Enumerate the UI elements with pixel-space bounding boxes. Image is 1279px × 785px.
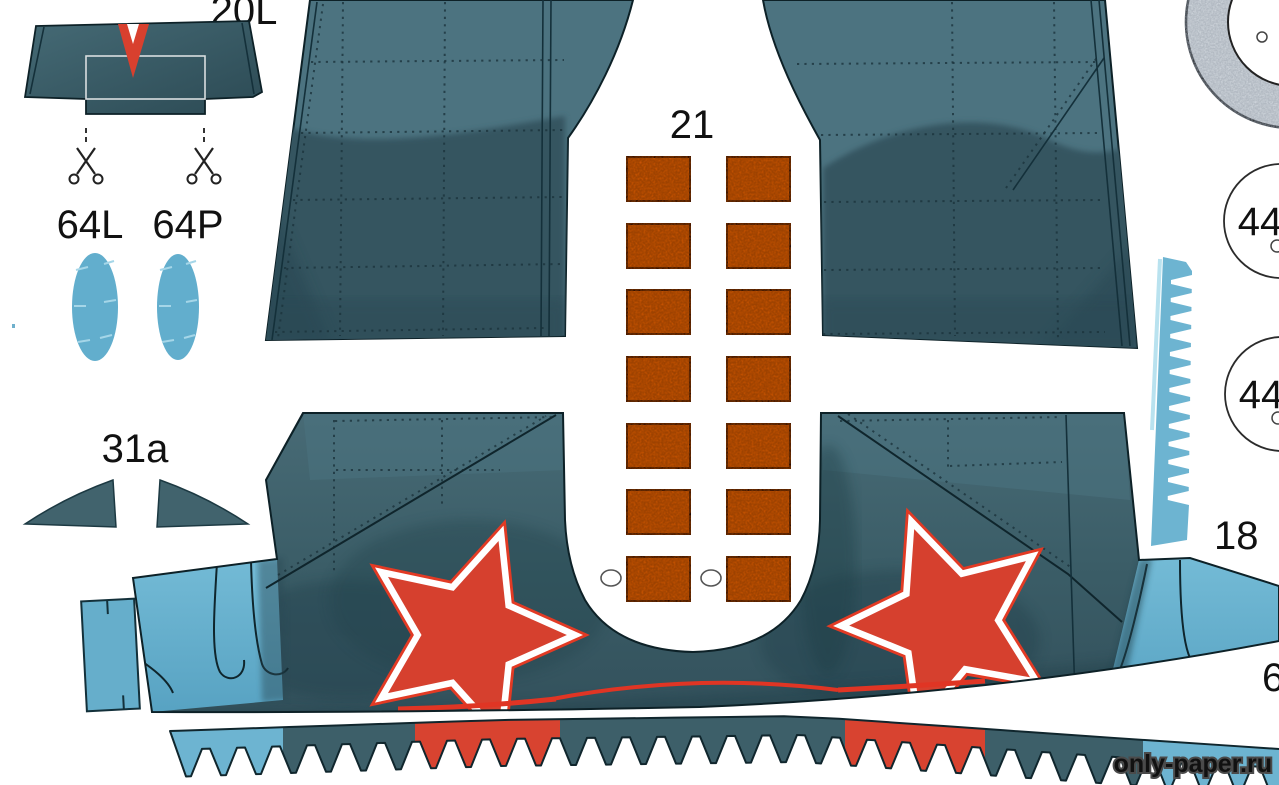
- part-20l: 20L: [25, 0, 277, 114]
- part-21: 21: [601, 103, 790, 601]
- part-6-partial-label: 6: [1262, 656, 1279, 700]
- papercraft-sheet: 20L 64L 64P 31a: [0, 0, 1279, 785]
- circle-44-b-label: 44: [1239, 373, 1279, 417]
- orange-rect: [727, 557, 790, 601]
- orange-rect: [727, 290, 790, 334]
- top-left-panel: [262, 0, 633, 350]
- part-21-grid: [627, 157, 790, 601]
- part-31a: 31a: [25, 427, 248, 527]
- orange-rect: [727, 490, 790, 534]
- fuselage-band: [133, 413, 1279, 765]
- watermark: only-paper.ru: [1114, 750, 1272, 778]
- blue-rect-part: [81, 599, 140, 712]
- part-64l-label: 64L: [57, 203, 124, 247]
- hole-mark: [1272, 412, 1279, 424]
- top-right-panel: [763, 0, 1140, 352]
- orange-rect: [727, 357, 790, 401]
- orange-rect: [627, 557, 690, 601]
- circle-44-a-label: 44: [1238, 200, 1279, 244]
- fin-right: [157, 480, 248, 527]
- hole-mark: [1271, 240, 1279, 252]
- sheet-canvas: 20L 64L 64P 31a: [0, 0, 1279, 785]
- circle-44-b: 44: [1225, 337, 1279, 451]
- orange-rect: [727, 224, 790, 268]
- part-18-label: 18: [1214, 514, 1259, 558]
- print-speck: [12, 324, 15, 328]
- fin-left: [25, 480, 116, 527]
- orange-rect: [727, 424, 790, 468]
- scissors-icon: [70, 128, 103, 184]
- part-64p-label: 64P: [152, 203, 223, 247]
- part-64-group: 64L 64P: [57, 203, 224, 361]
- orange-rect: [627, 357, 690, 401]
- comb-strip: [1151, 257, 1192, 546]
- hole-mark: [601, 570, 621, 586]
- orange-rect: [627, 424, 690, 468]
- orange-rect: [627, 157, 690, 201]
- circle-44-a: 44: [1224, 164, 1279, 278]
- scissors-icon: [188, 128, 221, 184]
- orange-rect: [627, 290, 690, 334]
- ring-part: [1186, 0, 1279, 128]
- hole-mark: [701, 570, 721, 586]
- hole-mark: [1257, 32, 1267, 42]
- part-31a-label: 31a: [102, 427, 169, 471]
- part-21-label: 21: [670, 103, 715, 147]
- band-left-blue: [133, 558, 288, 712]
- orange-rect: [727, 157, 790, 201]
- orange-rect: [627, 224, 690, 268]
- orange-rect: [627, 490, 690, 534]
